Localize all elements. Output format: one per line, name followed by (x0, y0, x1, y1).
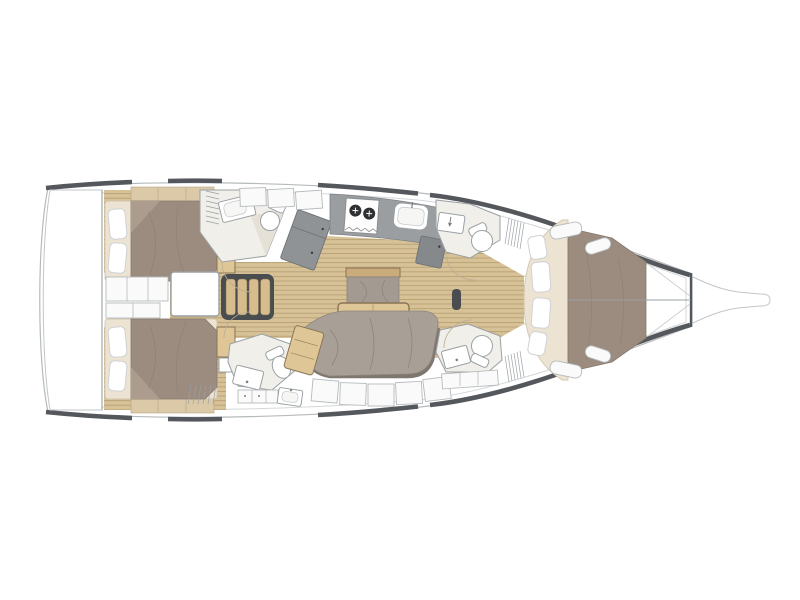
aft-cabin-starboard (105, 319, 235, 413)
stair-step (249, 279, 259, 315)
stair-step (226, 279, 236, 315)
stove (344, 198, 379, 234)
mast-post (452, 289, 461, 310)
galley-cabinet (268, 188, 295, 207)
headboard-shelf (131, 399, 214, 413)
bench-backrest (346, 268, 400, 277)
pillow (531, 297, 551, 328)
pillow (531, 261, 551, 292)
companionway-hatch (171, 272, 219, 316)
pillow (108, 360, 128, 391)
forward-cabin (524, 220, 690, 380)
pillow (527, 331, 548, 357)
basin (277, 387, 303, 406)
transom-platform (43, 190, 102, 410)
stair-step (261, 279, 271, 315)
bowsprit (693, 277, 770, 323)
swim-platform (43, 190, 102, 410)
pillow (527, 235, 548, 261)
sink (437, 212, 465, 233)
yacht-floor-plan (0, 0, 800, 600)
stair-step (238, 279, 248, 315)
companionway (171, 272, 274, 320)
engine-compartment-panels (106, 277, 168, 318)
pillow (108, 326, 128, 357)
engine-panel (106, 277, 168, 301)
galley-cabinet (240, 188, 267, 207)
galley-cabinet (295, 190, 322, 210)
pillow (108, 208, 128, 239)
center-bench-cushion (347, 277, 399, 304)
vanity-counter (238, 390, 278, 403)
yacht-floor-plan-canvas (0, 0, 800, 600)
pillow (108, 242, 128, 273)
